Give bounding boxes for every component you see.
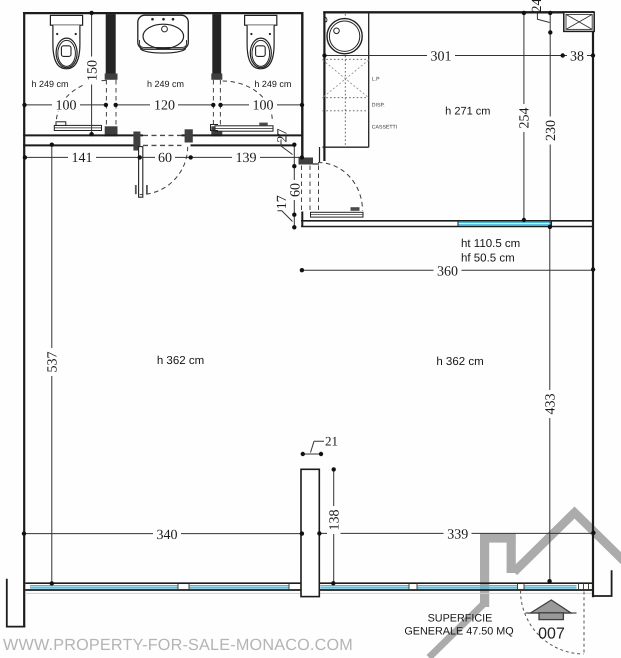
svg-text:WWW.PROPERTY-FOR-SALE-MONACO.C: WWW.PROPERTY-FOR-SALE-MONACO.COM bbox=[3, 636, 353, 654]
svg-text:537: 537 bbox=[46, 352, 61, 373]
svg-text:007: 007 bbox=[538, 625, 565, 642]
svg-text:21: 21 bbox=[325, 434, 338, 449]
svg-text:433: 433 bbox=[544, 394, 559, 415]
svg-text:h 249 cm: h 249 cm bbox=[31, 79, 68, 89]
svg-text:DISP.: DISP. bbox=[372, 103, 385, 109]
svg-text:301: 301 bbox=[431, 49, 452, 64]
svg-text:60: 60 bbox=[158, 151, 172, 166]
svg-text:h 271 cm: h 271 cm bbox=[445, 105, 490, 117]
svg-text:GENERALE 47.50 MQ: GENERALE 47.50 MQ bbox=[404, 626, 513, 638]
svg-text:ht 110.5 cm: ht 110.5 cm bbox=[461, 238, 520, 250]
svg-text:100: 100 bbox=[56, 99, 77, 114]
svg-text:38: 38 bbox=[570, 49, 584, 64]
svg-text:60: 60 bbox=[288, 183, 303, 197]
svg-text:SUPERFICIE: SUPERFICIE bbox=[428, 613, 493, 625]
svg-text:h 362 cm: h 362 cm bbox=[157, 355, 204, 367]
svg-text:120: 120 bbox=[154, 99, 175, 114]
svg-text:h 362 cm: h 362 cm bbox=[436, 356, 483, 368]
svg-text:h 249 cm: h 249 cm bbox=[147, 79, 184, 89]
svg-text:17: 17 bbox=[275, 195, 290, 209]
svg-text:CASSETTI: CASSETTI bbox=[372, 125, 397, 131]
svg-text:138: 138 bbox=[328, 510, 343, 531]
svg-text:339: 339 bbox=[447, 528, 468, 543]
svg-text:27: 27 bbox=[275, 129, 290, 143]
svg-text:340: 340 bbox=[157, 528, 178, 543]
svg-text:hf 50.5 cm: hf 50.5 cm bbox=[461, 252, 515, 264]
svg-text:360: 360 bbox=[437, 264, 458, 279]
svg-text:24: 24 bbox=[530, 0, 545, 13]
svg-text:150: 150 bbox=[85, 60, 100, 81]
svg-text:100: 100 bbox=[253, 99, 274, 114]
svg-text:h 249 cm: h 249 cm bbox=[254, 79, 291, 89]
svg-text:141: 141 bbox=[72, 151, 93, 166]
svg-text:230: 230 bbox=[544, 120, 559, 141]
svg-text:139: 139 bbox=[236, 151, 257, 166]
svg-text:254: 254 bbox=[518, 108, 533, 129]
svg-text:L.P: L.P bbox=[372, 77, 380, 83]
